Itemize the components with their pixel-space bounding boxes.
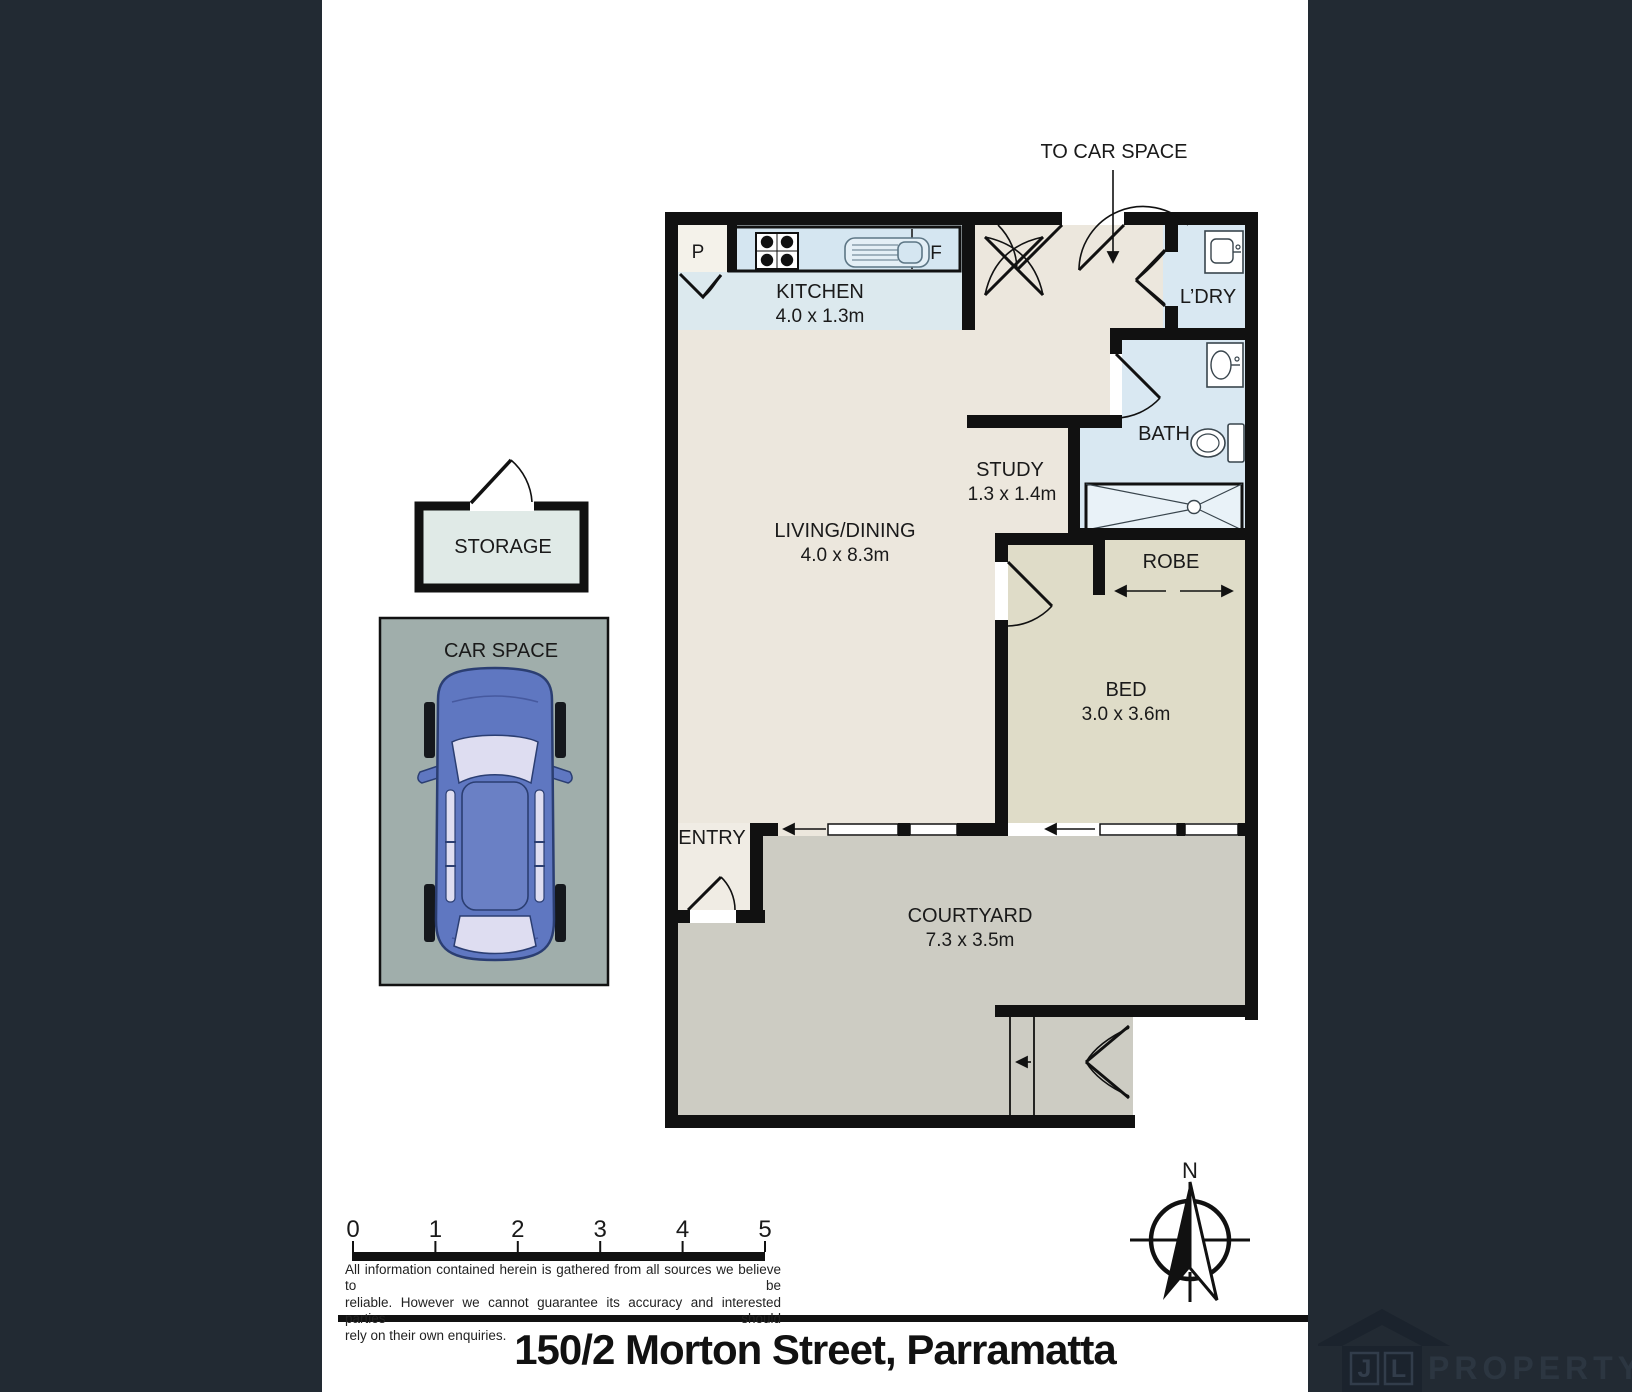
- washing-machine-icon: [1205, 231, 1243, 273]
- fridge-marker: F: [930, 243, 942, 264]
- study-dims: 1.3 x 1.4m: [968, 484, 1057, 505]
- room-fills: [678, 225, 1245, 1115]
- storage-label: STORAGE: [454, 536, 551, 558]
- bed-dims: 3.0 x 3.6m: [1082, 704, 1171, 725]
- logo-wordmark: PROPERTY: [1428, 1350, 1632, 1386]
- courtyard-dims: 7.3 x 3.5m: [926, 930, 1015, 951]
- logo-initial-j: J: [1358, 1355, 1372, 1383]
- car-space-label: CAR SPACE: [444, 640, 558, 662]
- sink-icon: [845, 238, 929, 267]
- robe-label: ROBE: [1143, 551, 1200, 573]
- living-floor: [678, 330, 962, 836]
- bath-label: BATH: [1138, 423, 1190, 445]
- kitchen-dims: 4.0 x 1.3m: [776, 306, 865, 327]
- to-car-space-label: TO CAR SPACE: [1040, 141, 1187, 163]
- sliding-door-panels: [828, 824, 1238, 835]
- laundry-label: L’DRY: [1180, 286, 1236, 308]
- compass-north-label: N: [1182, 1158, 1198, 1183]
- logo-initial-l: L: [1391, 1355, 1406, 1383]
- floor-plan-sheet: TO CAR SPACE P F KITCHEN 4.0 x 1.3m L’DR…: [0, 0, 1632, 1392]
- basin-icon: [1207, 343, 1243, 387]
- disclaimer-line-2: reliable. However we cannot guarantee it…: [345, 1295, 781, 1328]
- scale-2: 2: [511, 1216, 524, 1243]
- courtyard-label: COURTYARD: [908, 905, 1033, 927]
- address-title: 150/2 Morton Street, Parramatta: [322, 1326, 1308, 1374]
- scale-bar: 0 1 2 3 4 5: [346, 1216, 771, 1261]
- agency-logo: J L PROPERTY: [1318, 1303, 1632, 1392]
- living-label: LIVING/DINING: [774, 520, 915, 542]
- scale-1: 1: [429, 1216, 442, 1243]
- living-dims: 4.0 x 8.3m: [801, 545, 890, 566]
- entry-label: ENTRY: [678, 827, 745, 849]
- disclaimer-line-1: All information contained herein is gath…: [345, 1262, 781, 1295]
- scale-0: 0: [346, 1216, 359, 1243]
- stove-icon: [756, 233, 798, 269]
- kitchen-counter: [729, 227, 960, 271]
- car-space-area: [380, 618, 608, 985]
- courtyard-floor: [678, 836, 1245, 1115]
- north-compass-icon: N: [1130, 1158, 1250, 1302]
- pantry-marker: P: [692, 242, 705, 263]
- scale-5: 5: [758, 1216, 771, 1243]
- scale-4: 4: [676, 1216, 689, 1243]
- storage-box: [419, 460, 584, 588]
- scale-3: 3: [594, 1216, 607, 1243]
- kitchen-label: KITCHEN: [776, 281, 864, 303]
- study-label: STUDY: [976, 459, 1044, 481]
- bed-label: BED: [1105, 679, 1146, 701]
- shower-icon: [1086, 484, 1242, 530]
- car-icon: [418, 668, 572, 960]
- floor-plan-graphic: TO CAR SPACE P F KITCHEN 4.0 x 1.3m L’DR…: [0, 0, 1632, 1392]
- house-logo-icon: J L PROPERTY: [1318, 1303, 1632, 1392]
